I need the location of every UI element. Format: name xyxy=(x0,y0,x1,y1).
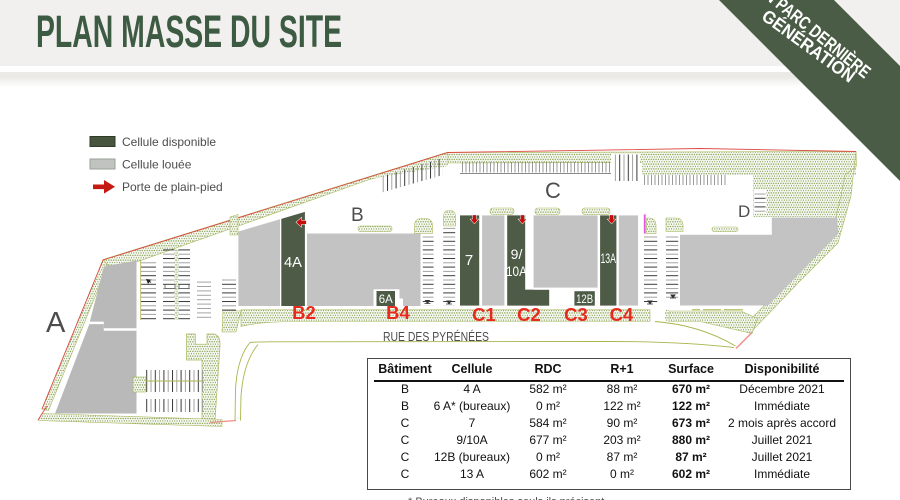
svg-text:A: A xyxy=(46,307,66,339)
svg-text:Porte de plain-pied: Porte de plain-pied xyxy=(122,180,223,194)
svg-text:C: C xyxy=(545,178,561,203)
svg-text:C1: C1 xyxy=(472,304,496,325)
svg-text:Cellule louée: Cellule louée xyxy=(122,158,192,172)
svg-text:C4: C4 xyxy=(610,304,634,325)
svg-text:Cellule disponible: Cellule disponible xyxy=(122,135,216,149)
svg-text:D: D xyxy=(738,202,750,221)
svg-text:B4: B4 xyxy=(386,302,410,323)
svg-text:B: B xyxy=(351,205,364,226)
svg-text:7: 7 xyxy=(465,252,473,269)
svg-text:C3: C3 xyxy=(564,304,588,325)
svg-text:B2: B2 xyxy=(292,302,316,323)
svg-text:10A: 10A xyxy=(506,263,528,279)
svg-text:13A: 13A xyxy=(600,250,616,266)
svg-text:4A: 4A xyxy=(284,254,302,271)
svg-text:C2: C2 xyxy=(517,304,541,325)
svg-text:RUE DES PYRÉNÉES: RUE DES PYRÉNÉES xyxy=(383,329,489,344)
svg-text:PLAN MASSE DU SITE: PLAN MASSE DU SITE xyxy=(36,6,342,57)
svg-text:9/: 9/ xyxy=(511,246,523,262)
